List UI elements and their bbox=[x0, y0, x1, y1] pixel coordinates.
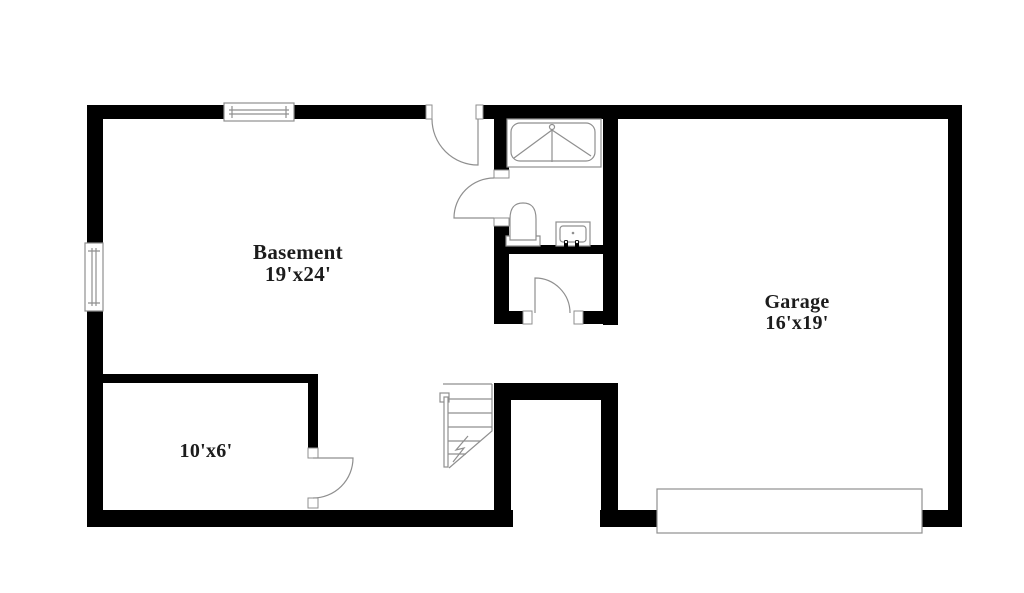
door-leaf-and-arc bbox=[432, 119, 478, 165]
top-window-icon bbox=[224, 103, 294, 121]
basement-dimensions-label: 19'x24' bbox=[265, 262, 331, 286]
stair-stringer bbox=[444, 397, 448, 467]
door-leaf-and-arc bbox=[454, 178, 494, 218]
alcove-top-wall bbox=[494, 383, 618, 400]
staircase-icon bbox=[440, 384, 492, 468]
sink-vanity-icon bbox=[556, 222, 590, 249]
window-frame bbox=[224, 103, 294, 121]
interior-walls bbox=[103, 119, 618, 527]
garage-door-icon bbox=[657, 489, 922, 533]
floor-plan: Basement 19'x24' Garage 16'x19' 10'x6' bbox=[0, 0, 1024, 593]
bathroom-door-jamb bbox=[494, 218, 509, 226]
storage-right-wall bbox=[308, 374, 318, 448]
alcove-left-wall bbox=[494, 400, 511, 527]
left-window-icon bbox=[85, 243, 103, 311]
toilet-bowl bbox=[510, 203, 536, 240]
room-label-garage: Garage 16'x19' bbox=[764, 291, 829, 334]
top-wall-segment bbox=[87, 105, 224, 119]
top-wall-segment bbox=[294, 105, 432, 119]
entry-door-jamb bbox=[426, 105, 432, 119]
toilet-icon bbox=[506, 203, 540, 246]
garage-name-label: Garage bbox=[764, 291, 829, 313]
bathroom-door-jamb bbox=[494, 170, 509, 178]
room-label-storage: 10'x6' bbox=[180, 440, 233, 462]
alcove-right-wall bbox=[601, 400, 618, 527]
closet-door-swing-icon bbox=[535, 278, 570, 313]
closet-door-jamb bbox=[574, 311, 583, 324]
bathroom-door-swing-icon bbox=[454, 178, 494, 218]
garage-dimensions-label: 16'x19' bbox=[765, 312, 828, 334]
closet-door-jamb bbox=[523, 311, 532, 324]
door-leaf-and-arc bbox=[313, 458, 353, 498]
room-label-basement: Basement 19'x24' bbox=[253, 240, 343, 286]
right-wall bbox=[948, 105, 962, 527]
door-leaf-and-arc bbox=[535, 278, 570, 313]
storage-top-wall bbox=[103, 374, 318, 383]
storage-door-jamb bbox=[308, 448, 318, 458]
window-frame bbox=[85, 243, 103, 311]
closet-bottom-wall-segment bbox=[494, 311, 523, 324]
garage-divider-wall bbox=[603, 119, 618, 325]
stair-break-edge bbox=[449, 384, 492, 468]
bottom-wall-segment bbox=[87, 510, 513, 527]
entry-door-swing-icon bbox=[432, 119, 478, 165]
garage-door-panel bbox=[657, 489, 922, 533]
faucet-dot bbox=[576, 241, 578, 243]
basement-name-label: Basement bbox=[253, 240, 343, 264]
left-wall-segment bbox=[87, 105, 103, 243]
sink-drain bbox=[572, 232, 575, 235]
storage-dimensions-label: 10'x6' bbox=[180, 440, 233, 462]
storage-door-swing-icon bbox=[313, 458, 353, 498]
stair-treads bbox=[448, 399, 492, 454]
top-wall-segment bbox=[476, 105, 962, 119]
faucet-dot bbox=[565, 241, 567, 243]
closet-bottom-wall-segment bbox=[583, 311, 618, 324]
left-wall-segment bbox=[87, 311, 103, 527]
storage-door-jamb bbox=[308, 498, 318, 508]
shower-head bbox=[550, 125, 555, 130]
bathtub-shower-icon bbox=[507, 119, 601, 167]
floor-plan-drawing: Basement 19'x24' Garage 16'x19' 10'x6' bbox=[0, 0, 1024, 593]
entry-door-jamb bbox=[476, 105, 483, 119]
